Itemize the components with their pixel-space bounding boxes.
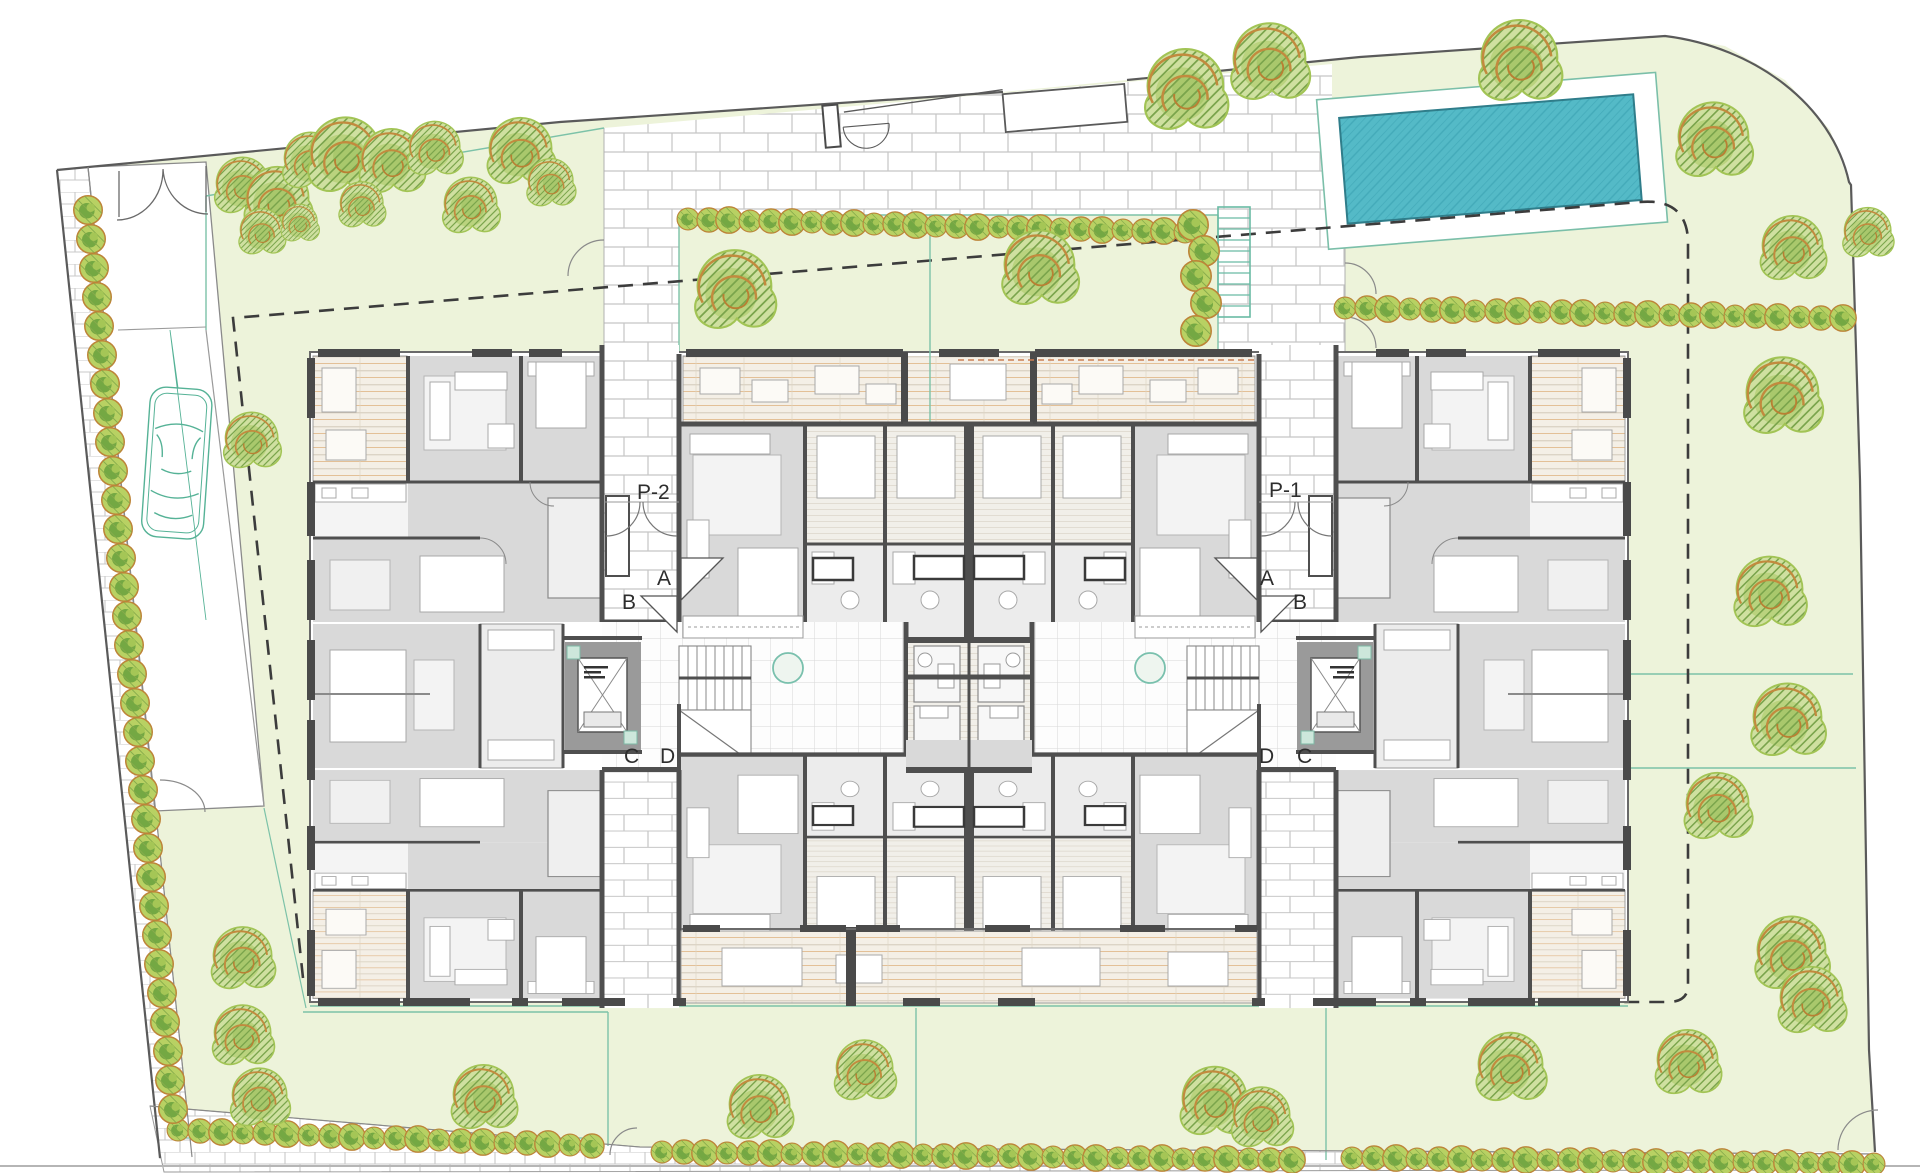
- svg-text:A: A: [657, 567, 671, 590]
- svg-text:B: B: [1293, 591, 1307, 614]
- svg-text:P-2: P-2: [637, 481, 670, 504]
- svg-text:B: B: [622, 591, 636, 614]
- svg-text:C: C: [1297, 745, 1312, 768]
- svg-text:D: D: [1259, 745, 1274, 768]
- svg-text:C: C: [624, 745, 639, 768]
- svg-text:P-1: P-1: [1269, 479, 1302, 502]
- svg-text:A: A: [1260, 567, 1274, 590]
- svg-text:D: D: [660, 745, 675, 768]
